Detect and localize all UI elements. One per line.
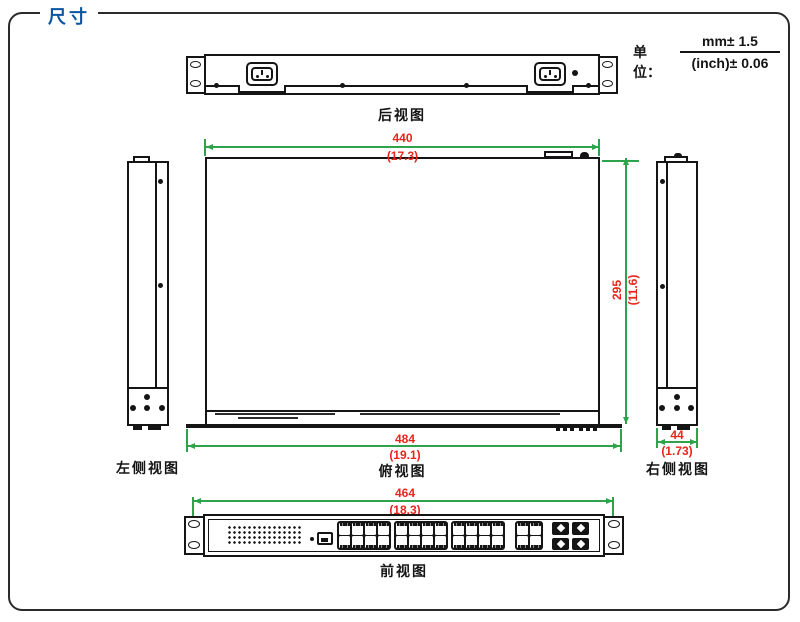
right-screw: [660, 284, 665, 289]
rj45-port: [466, 536, 477, 548]
rj45-port: [422, 536, 433, 548]
rj45-port: [409, 523, 420, 535]
sfp-slot: [572, 538, 589, 551]
rj45-port: [466, 523, 477, 535]
power-inlet-contact: [251, 67, 273, 81]
page-title: 尺寸: [40, 3, 98, 29]
rj45-port: [422, 523, 433, 535]
rj45-port: [453, 523, 464, 535]
rj45-group-3: [451, 521, 505, 550]
dim-44-mm: 44: [647, 429, 707, 441]
top-vent-tick: [593, 428, 597, 431]
dim-44-inch: (1.73): [647, 445, 707, 457]
rj45-port: [517, 523, 528, 535]
left-foot: [133, 426, 142, 430]
units-fraction: mm± 1.5 (inch)± 0.06: [680, 33, 780, 71]
top-view-label: 俯视图: [205, 461, 600, 481]
left-bracket-screw: [159, 405, 165, 411]
rj45-port: [378, 523, 389, 535]
dim-440-inch: (17.3): [205, 150, 600, 162]
rj45-port: [396, 523, 407, 535]
top-vent-tick: [579, 428, 583, 431]
dim-484-mm: 484: [205, 433, 605, 445]
rj45-port: [409, 536, 420, 548]
units-label: 单位：: [633, 42, 661, 82]
rear-screw: [340, 83, 345, 88]
rj45-port: [517, 536, 528, 548]
rear-ear-hole: [602, 80, 613, 87]
left-foot: [148, 426, 161, 430]
rj45-port: [492, 536, 503, 548]
right-side-view-label: 右侧视图: [642, 459, 714, 479]
left-bracket-screw: [144, 405, 150, 411]
rj45-port: [396, 536, 407, 548]
right-screw: [660, 179, 665, 184]
front-ear-hole: [188, 520, 200, 528]
top-front-detail: [215, 413, 335, 415]
sfp-slot: [552, 522, 569, 535]
dim-295-inch: (11.6): [627, 268, 639, 312]
rj45-port: [339, 536, 350, 548]
front-ear-hole: [608, 541, 620, 549]
units-mm: mm± 1.5: [680, 33, 780, 53]
rear-ground-screw: [572, 70, 578, 76]
led-matrix: [227, 525, 302, 545]
units-inch: (inch)± 0.06: [680, 53, 780, 71]
rear-screw: [214, 83, 219, 88]
right-bracket-screw: [674, 394, 680, 400]
rj45-port: [378, 536, 389, 548]
rj45-port: [435, 536, 446, 548]
right-body: [656, 161, 698, 389]
rj45-port: [352, 536, 363, 548]
rj45-port: [530, 523, 541, 535]
power-inlet-left: [246, 62, 278, 86]
right-bracket-screw: [674, 405, 680, 411]
front-ear-hole: [608, 520, 620, 528]
rj45-port: [339, 523, 350, 535]
top-chassis: [205, 157, 600, 412]
right-bracket-screw: [688, 405, 694, 411]
rear-inlet-tray: [238, 85, 286, 93]
dim-440-mm: 440: [205, 132, 600, 144]
left-bracket-screw: [130, 405, 136, 411]
rj45-port: [365, 536, 376, 548]
reset-button: [310, 537, 314, 541]
left-bracket-screw: [144, 394, 150, 400]
left-side-view-label: 左侧视图: [113, 458, 183, 478]
rj45-group-4: [515, 521, 543, 550]
rear-ear-hole: [602, 61, 613, 68]
power-inlet-right: [534, 62, 566, 86]
rj45-port: [479, 536, 490, 548]
top-front-detail: [238, 417, 298, 419]
left-screw: [158, 283, 163, 288]
dimension-drawing-canvas: 尺寸 单位： mm± 1.5 (inch)± 0.06: [0, 0, 800, 622]
sfp-slot: [552, 538, 569, 551]
rj45-port: [492, 523, 503, 535]
top-front-detail: [360, 413, 560, 415]
dim-464-mm: 464: [205, 487, 605, 499]
rj45-port: [453, 536, 464, 548]
top-vent-tick: [556, 428, 560, 431]
rj45-port: [435, 523, 446, 535]
rj45-port: [479, 523, 490, 535]
top-vent-tick: [563, 428, 567, 431]
rear-screw: [464, 83, 469, 88]
front-view-label: 前视图: [204, 561, 604, 581]
rear-view-label: 后视图: [204, 105, 600, 125]
rj45-group-1: [337, 521, 391, 550]
top-vent-tick: [570, 428, 574, 431]
rj45-port: [530, 536, 541, 548]
left-body: [127, 161, 169, 389]
rear-inlet-tray: [526, 85, 574, 93]
right-bracket-screw: [659, 405, 665, 411]
rj45-port: [365, 523, 376, 535]
rear-ear-hole: [190, 61, 201, 68]
power-inlet-contact: [539, 67, 561, 81]
front-ear-hole: [188, 541, 200, 549]
sfp-slot: [572, 522, 589, 535]
sfp-grid: [552, 522, 589, 550]
rj45-port: [352, 523, 363, 535]
left-screw: [158, 179, 163, 184]
left-panel-line: [155, 163, 157, 387]
console-port: [317, 532, 333, 545]
rear-screw: [586, 83, 591, 88]
rear-ear-hole: [190, 80, 201, 87]
top-vent-tick: [586, 428, 590, 431]
rj45-group-2: [394, 521, 448, 550]
dim-484-inch: (19.1): [205, 449, 605, 461]
right-panel-line: [666, 163, 668, 387]
dim-295-mm: 295: [611, 270, 623, 310]
